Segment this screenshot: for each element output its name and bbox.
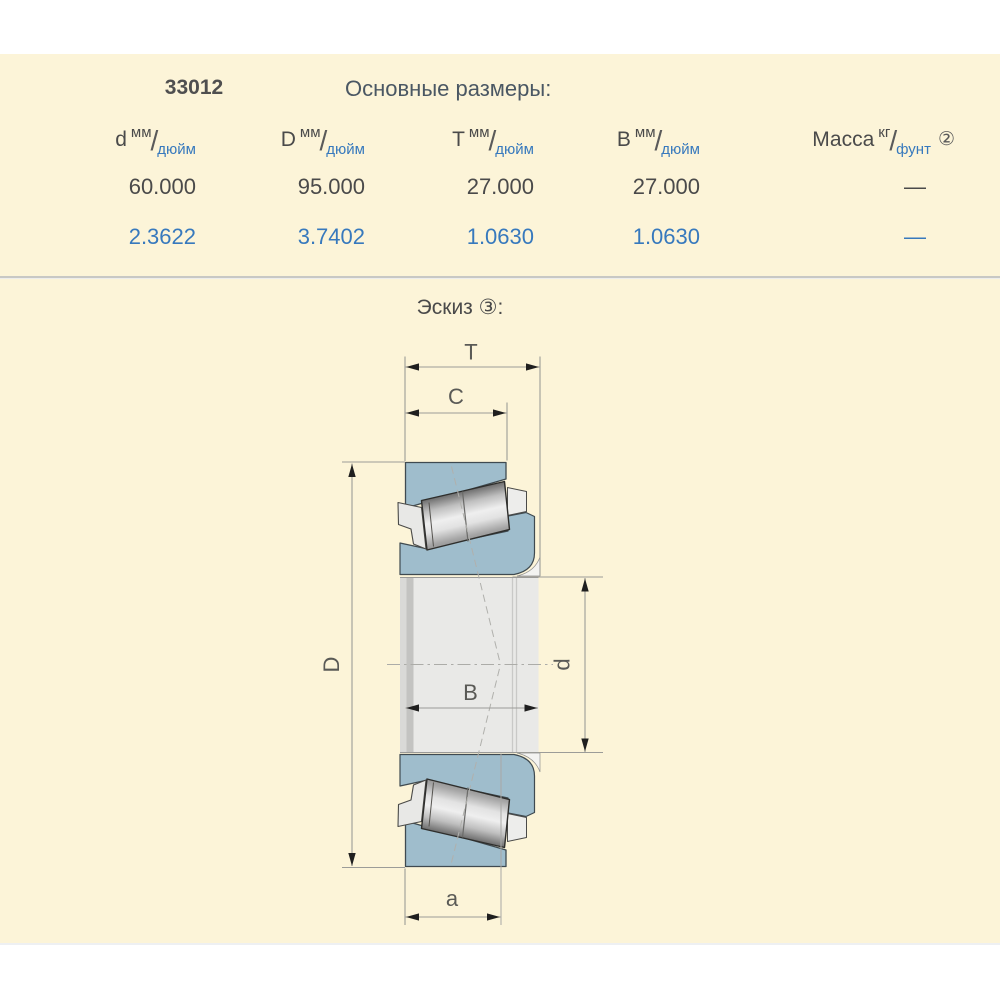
unit-inch: дюйм [326, 141, 365, 158]
dim-label-D: D [319, 657, 344, 673]
value-T-mm: 27.000 [467, 174, 534, 200]
symbol-mass: Масса [812, 128, 874, 151]
value-B-inch: 1.0630 [633, 224, 700, 250]
symbol-T: T [452, 128, 465, 151]
footnote-2-marker: ② [938, 129, 955, 150]
column-header-B: Bмм/дюйм [617, 124, 700, 158]
value-d-inch: 2.3622 [129, 224, 196, 250]
back-rib-top [508, 488, 527, 516]
dim-label-T: T [464, 340, 477, 365]
bottom-white-band [0, 943, 1000, 1000]
value-T-inch: 1.0630 [467, 224, 534, 250]
bearing-part-number: 33012 [152, 76, 236, 100]
unit-inch: дюйм [495, 141, 534, 158]
unit-mm: мм [131, 124, 152, 141]
dimension-C: C [406, 384, 508, 461]
dimension-a: a [405, 869, 501, 926]
value-B-mm: 27.000 [633, 174, 700, 200]
sketch-heading: Эскиз ③: [380, 295, 540, 320]
unit-lb: фунт [896, 141, 931, 158]
column-header-D: Dмм/дюйм [281, 124, 365, 158]
table-title: Основные размеры: [345, 76, 551, 102]
catalog-page: 33012 Основные размеры: dмм/дюйм Dмм/дюй… [0, 0, 1000, 1000]
column-header-mass: Массакг/фунт② [812, 124, 955, 158]
value-D-mm: 95.000 [298, 174, 365, 200]
unit-mm: мм [469, 124, 490, 141]
dim-label-d: d [550, 658, 575, 670]
symbol-B: B [617, 128, 631, 151]
symbol-D: D [281, 128, 296, 151]
unit-inch: дюйм [157, 141, 196, 158]
dim-label-C: C [448, 384, 464, 409]
unit-mm: мм [300, 124, 321, 141]
column-header-T: Tмм/дюйм [452, 124, 534, 158]
dim-label-a: a [446, 886, 459, 911]
bearing-cross-section-sketch: T C D d B [300, 330, 640, 935]
value-D-inch: 3.7402 [298, 224, 365, 250]
value-mass-lb: — [904, 224, 926, 250]
unit-mm: мм [635, 124, 656, 141]
back-rib-bottom [508, 814, 527, 842]
unit-inch: дюйм [661, 141, 700, 158]
value-mass-kg: — [904, 174, 926, 200]
symbol-d: d [115, 128, 127, 151]
dim-label-B: B [463, 680, 478, 705]
value-d-mm: 60.000 [129, 174, 196, 200]
top-white-band [0, 0, 1000, 54]
column-header-d: dмм/дюйм [115, 124, 196, 158]
section-divider [0, 276, 1000, 279]
